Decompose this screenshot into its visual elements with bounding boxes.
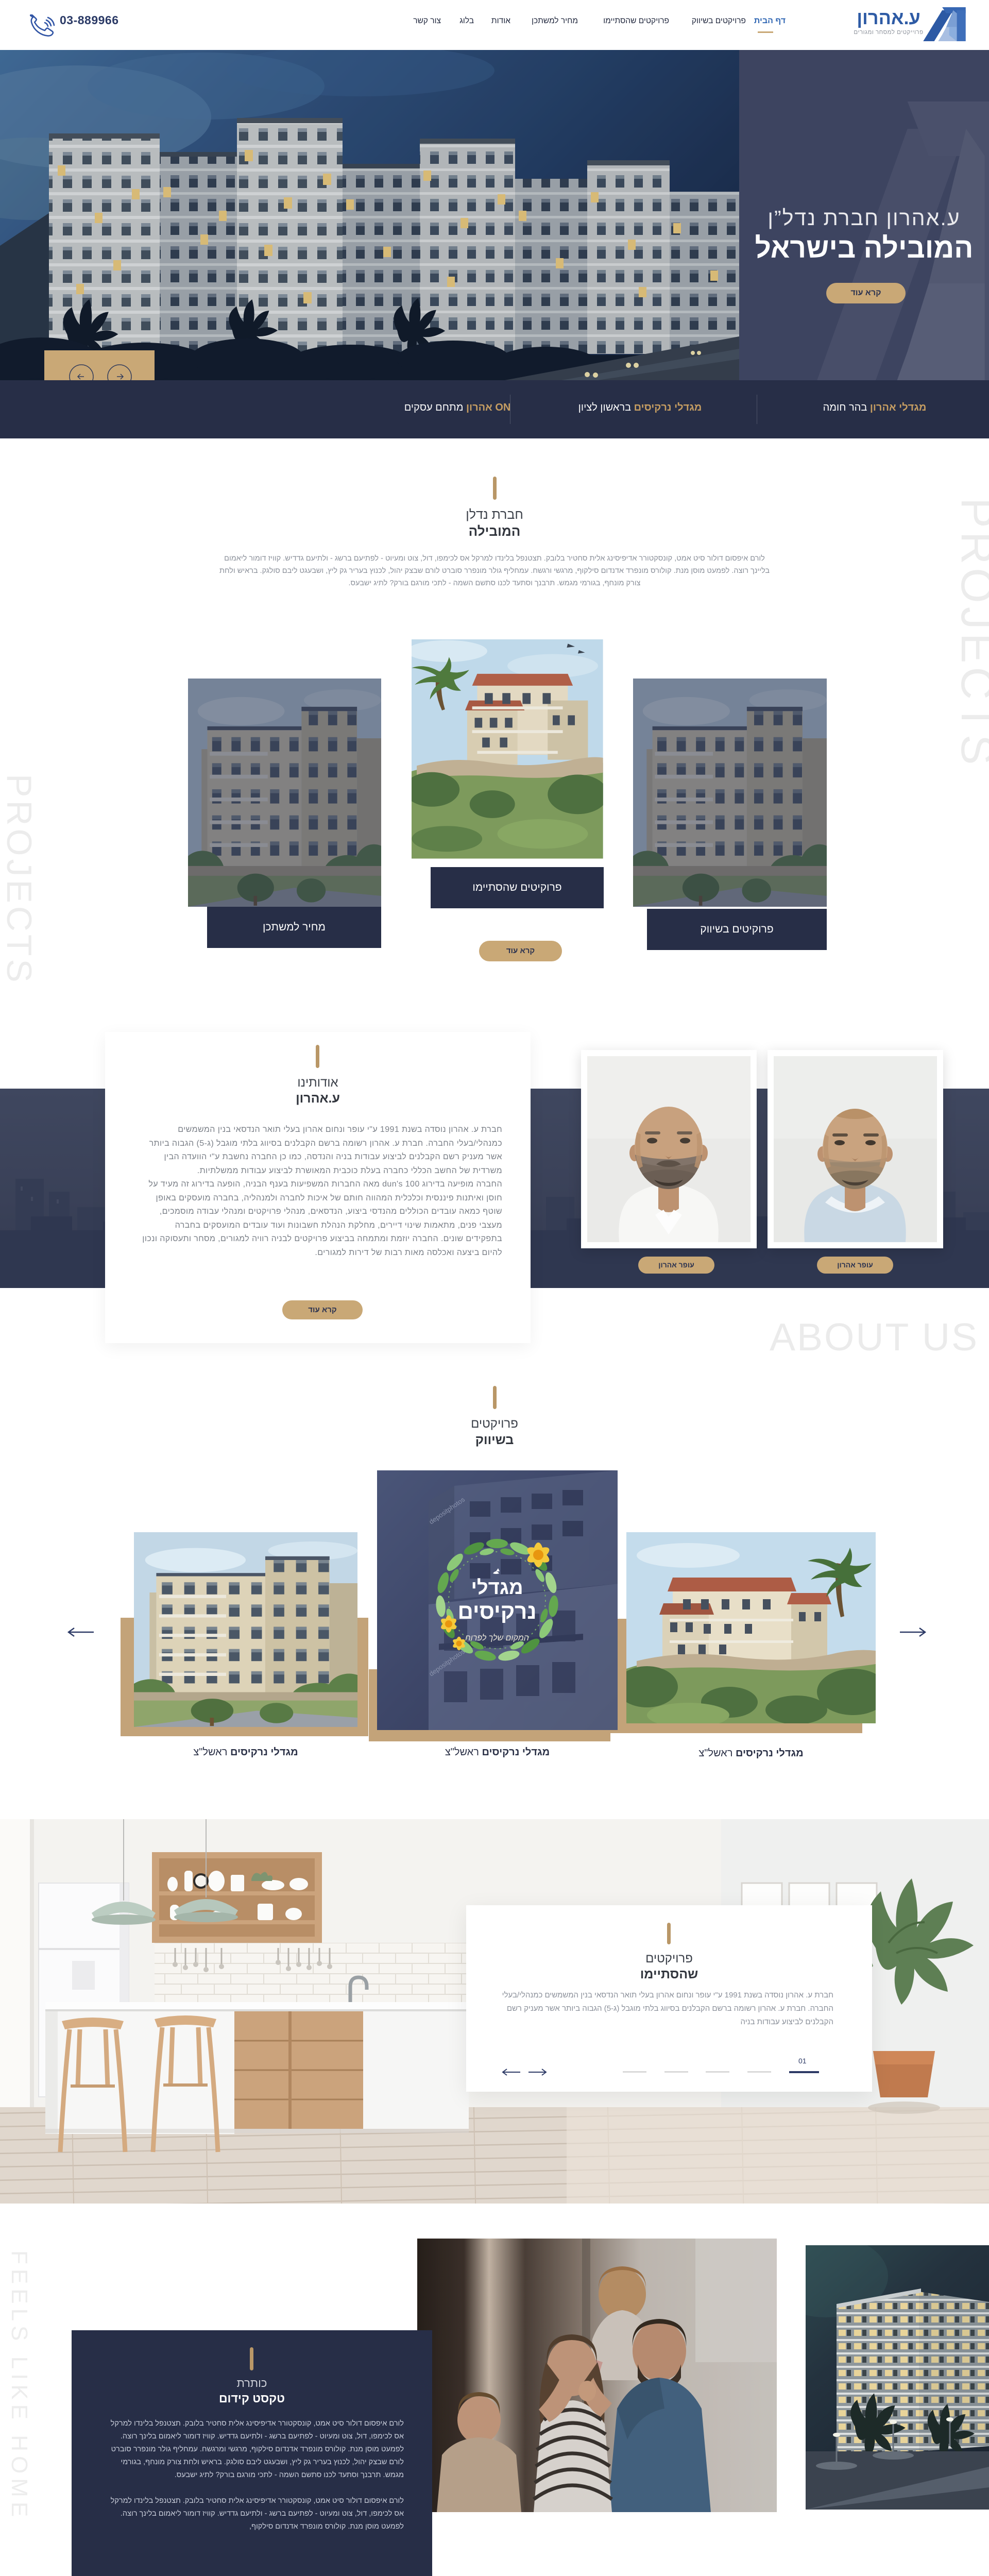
svg-text:נרקיסים: נרקיסים [457, 1599, 536, 1623]
svg-text:מגדלי: מגדלי [471, 1577, 523, 1599]
svg-text:המקום שלך לפרוח: המקום שלך לפרוח [465, 1633, 529, 1642]
